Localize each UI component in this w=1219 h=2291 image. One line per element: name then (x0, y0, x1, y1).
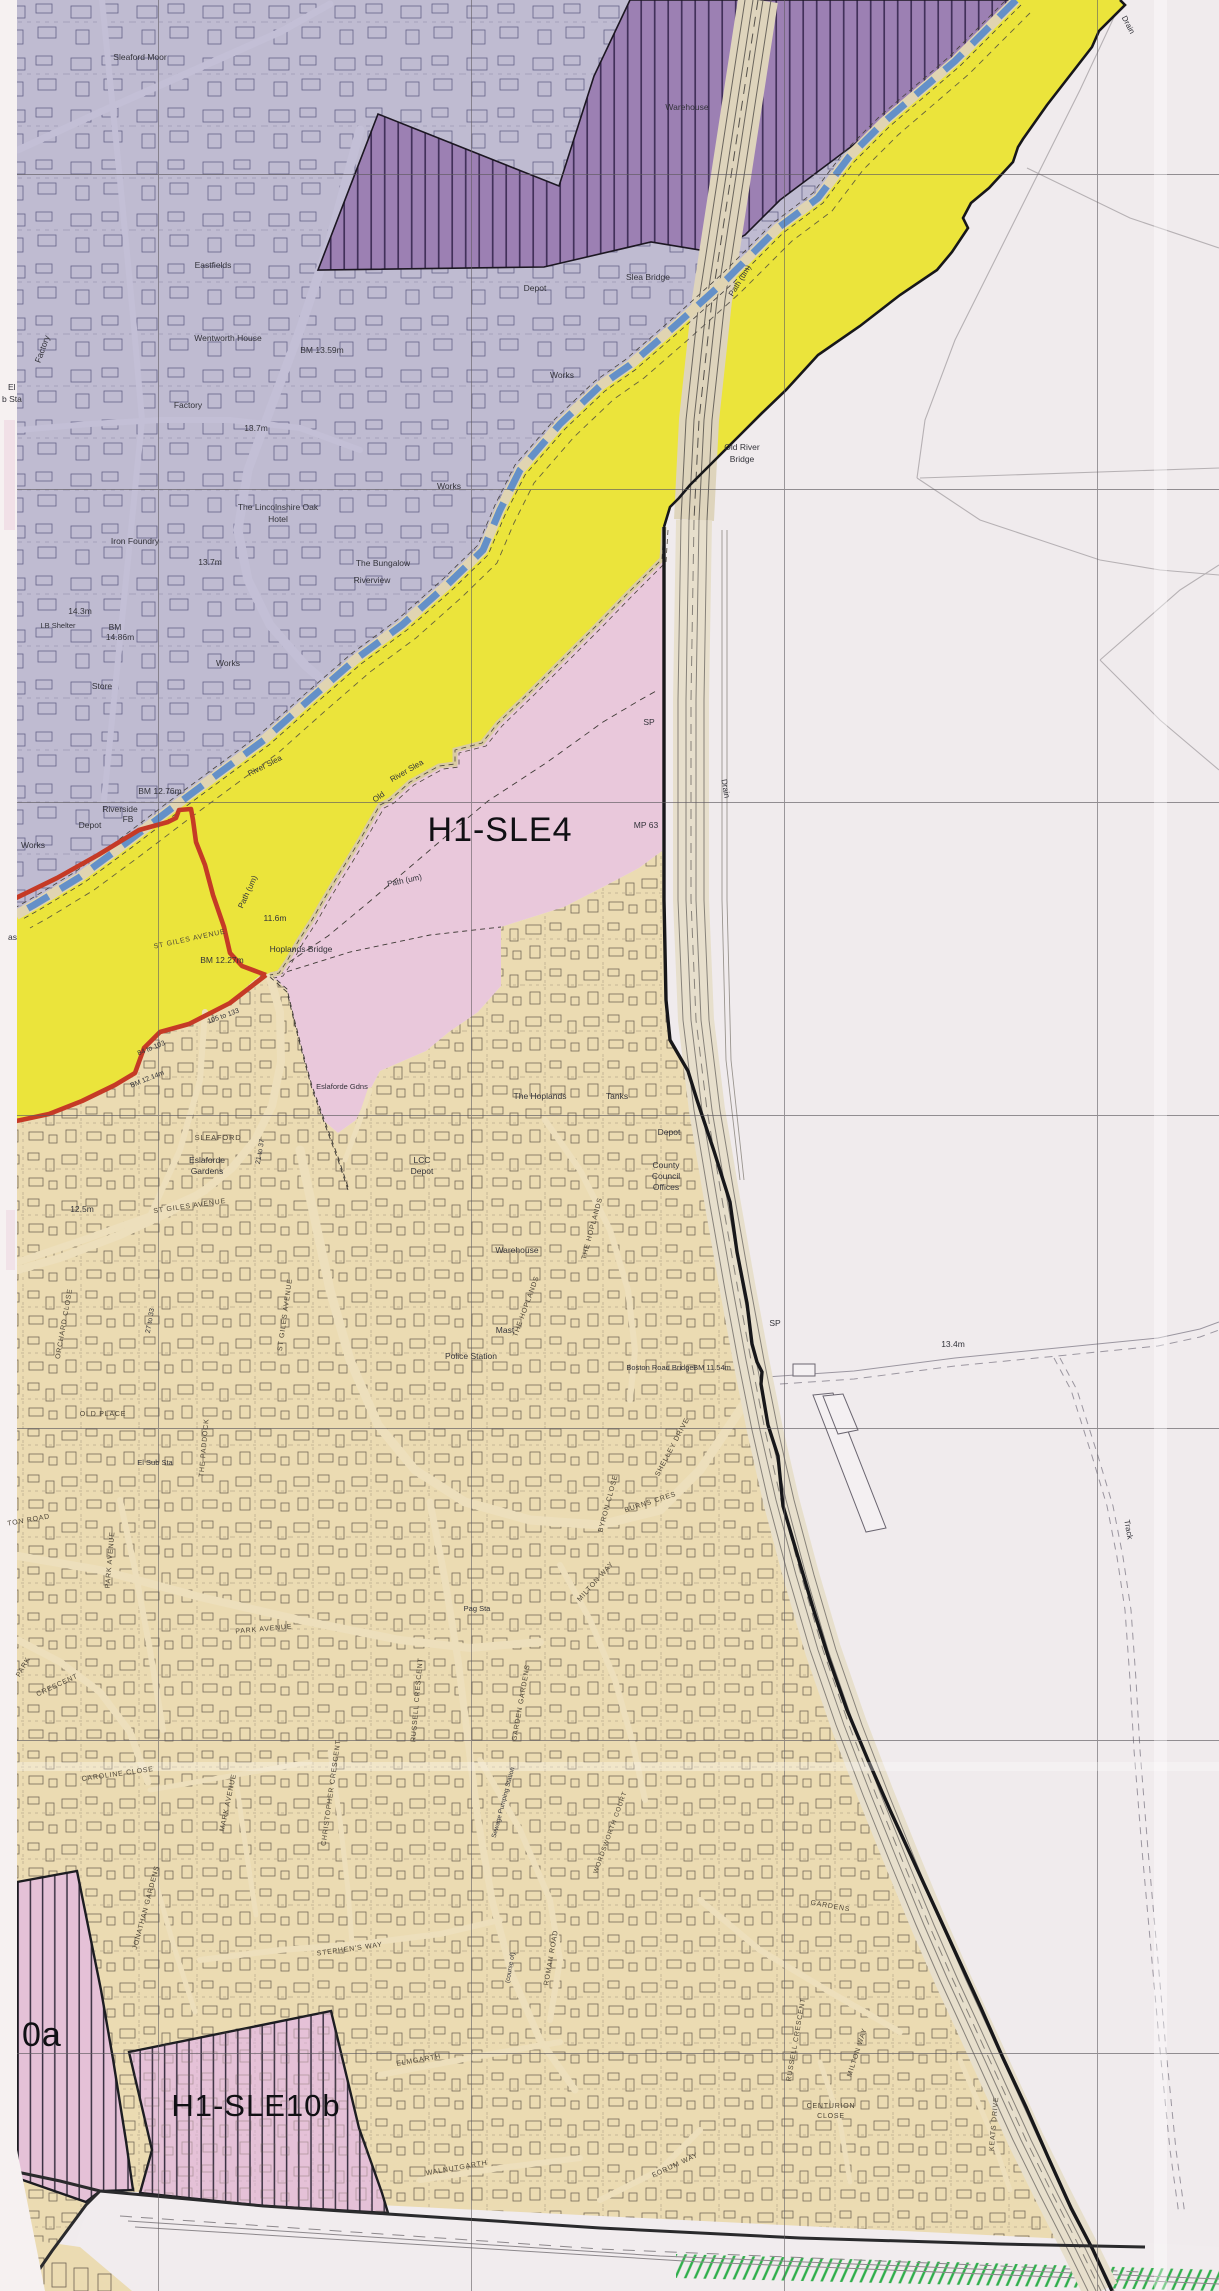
svg-text:13.4m: 13.4m (941, 1339, 965, 1349)
svg-text:H1-SLE10b: H1-SLE10b (171, 2088, 340, 2123)
svg-text:The Lincolnshire Oak: The Lincolnshire Oak (238, 502, 319, 512)
svg-text:Warehouse: Warehouse (495, 1245, 538, 1255)
svg-text:Store: Store (92, 681, 113, 691)
svg-text:County: County (653, 1160, 681, 1170)
svg-text:Tanks: Tanks (606, 1091, 628, 1101)
svg-text:Depot: Depot (524, 283, 547, 293)
svg-text:Depot: Depot (411, 1166, 434, 1176)
svg-text:Slea Bridge: Slea Bridge (626, 272, 670, 282)
svg-text:Works: Works (437, 481, 461, 491)
svg-text:LCC: LCC (413, 1155, 430, 1165)
svg-text:BM 13.59m: BM 13.59m (300, 345, 343, 355)
svg-text:CENTURION: CENTURION (807, 2103, 856, 2110)
svg-text:BM 12.27m: BM 12.27m (200, 955, 243, 965)
svg-text:Warehouse: Warehouse (665, 102, 708, 112)
svg-text:Depot: Depot (658, 1127, 681, 1137)
svg-text:MP 63: MP 63 (634, 820, 659, 830)
svg-text:Wentworth House: Wentworth House (194, 333, 262, 343)
svg-text:OLD PLACE: OLD PLACE (80, 1411, 127, 1418)
svg-text:El Sub Sta: El Sub Sta (137, 1458, 173, 1467)
svg-text:Works: Works (216, 658, 240, 668)
svg-text:SLEAFORD: SLEAFORD (195, 1133, 242, 1142)
svg-text:BM 12.76m: BM 12.76m (138, 786, 181, 796)
svg-text:Council: Council (652, 1171, 680, 1181)
svg-text:11.6m: 11.6m (264, 913, 287, 923)
svg-text:Eslaforde: Eslaforde (189, 1155, 225, 1165)
svg-text:13.7m: 13.7m (244, 423, 268, 433)
svg-text:Riverside: Riverside (102, 804, 138, 814)
svg-text:Old River: Old River (724, 442, 760, 452)
svg-text:Iron Foundry: Iron Foundry (111, 536, 160, 546)
svg-text:Works: Works (21, 840, 45, 850)
svg-text:El: El (8, 382, 16, 392)
svg-text:Hotel: Hotel (268, 514, 288, 524)
svg-text:SP: SP (643, 717, 655, 727)
svg-text:Mast: Mast (496, 1325, 515, 1335)
svg-text:Riverview: Riverview (354, 575, 392, 585)
svg-text:Police Station: Police Station (445, 1351, 497, 1361)
svg-text:SP: SP (769, 1318, 781, 1328)
svg-text:Factory: Factory (174, 400, 203, 410)
svg-text:as: as (8, 932, 17, 942)
svg-text:Hoplands Bridge: Hoplands Bridge (270, 944, 333, 954)
svg-text:Boston Road Bridge: Boston Road Bridge (626, 1363, 693, 1372)
svg-text:14.86m: 14.86m (106, 632, 134, 642)
svg-text:Eastfields: Eastfields (195, 260, 232, 270)
svg-text:FB: FB (123, 814, 134, 824)
svg-text:13.7m: 13.7m (198, 557, 222, 567)
svg-text:Gardens: Gardens (191, 1166, 224, 1176)
svg-text:CLOSE: CLOSE (817, 2113, 845, 2120)
svg-text:Eslaforde Gdns: Eslaforde Gdns (316, 1082, 368, 1091)
svg-text:Sleaford Moor: Sleaford Moor (113, 52, 167, 62)
svg-text:12.5m: 12.5m (70, 1204, 94, 1214)
svg-text:Works: Works (550, 370, 574, 380)
svg-text:The Hoplands: The Hoplands (514, 1091, 567, 1101)
svg-text:BM: BM (109, 622, 122, 632)
svg-text:H1-SLE4: H1-SLE4 (428, 811, 573, 849)
svg-text:b Sta: b Sta (2, 394, 22, 404)
svg-text:Bridge: Bridge (730, 454, 755, 464)
svg-text:LB Shelter: LB Shelter (40, 621, 76, 630)
svg-text:14.3m: 14.3m (68, 606, 92, 616)
svg-text:BM 11.54m: BM 11.54m (693, 1363, 731, 1372)
svg-text:0a: 0a (22, 2016, 62, 2054)
svg-text:The Bungalow: The Bungalow (356, 558, 411, 568)
svg-text:Depot: Depot (79, 820, 102, 830)
svg-text:Pag Sta: Pag Sta (464, 1604, 492, 1613)
svg-text:Offices: Offices (653, 1182, 679, 1192)
